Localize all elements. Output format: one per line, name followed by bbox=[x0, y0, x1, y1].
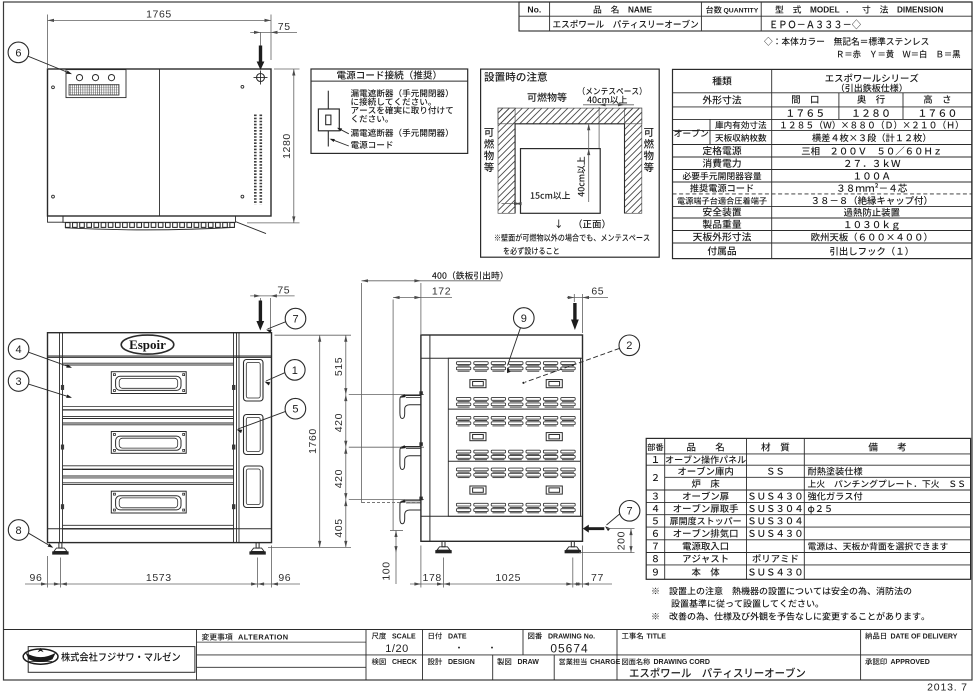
svg-text:DRAW: DRAW bbox=[518, 659, 540, 666]
svg-text:178: 178 bbox=[423, 572, 442, 584]
svg-text:75: 75 bbox=[278, 21, 291, 33]
svg-text:515: 515 bbox=[333, 357, 345, 376]
svg-text:2: 2 bbox=[626, 340, 632, 352]
svg-text:DRAWING No.: DRAWING No. bbox=[548, 633, 595, 640]
svg-text:5: 5 bbox=[292, 404, 298, 416]
svg-text:DIMENSION: DIMENSION bbox=[897, 6, 943, 15]
svg-text:2013. 7: 2013. 7 bbox=[927, 682, 968, 693]
svg-text:DATE OF DELIVERY: DATE OF DELIVERY bbox=[891, 633, 958, 640]
svg-text:SCALE: SCALE bbox=[392, 633, 416, 640]
svg-text:77: 77 bbox=[591, 572, 604, 584]
svg-text:1573: 1573 bbox=[146, 572, 172, 584]
svg-text:DRAWING CORD: DRAWING CORD bbox=[654, 659, 710, 666]
svg-text:1: 1 bbox=[292, 365, 298, 377]
svg-text:NAME: NAME bbox=[628, 6, 653, 15]
svg-text:6: 6 bbox=[15, 47, 21, 59]
svg-text:405: 405 bbox=[333, 518, 345, 537]
svg-text:420: 420 bbox=[333, 413, 345, 432]
svg-text:420: 420 bbox=[333, 469, 345, 488]
svg-text:05674: 05674 bbox=[550, 641, 588, 655]
svg-text:8: 8 bbox=[16, 525, 22, 537]
svg-text:TITLE: TITLE bbox=[647, 633, 667, 640]
svg-text:1025: 1025 bbox=[495, 572, 521, 584]
svg-text:7: 7 bbox=[292, 314, 298, 326]
svg-text:CHARGE: CHARGE bbox=[590, 659, 621, 666]
svg-text:172: 172 bbox=[432, 286, 451, 298]
svg-text:200: 200 bbox=[616, 531, 628, 550]
svg-text:APPROVED: APPROVED bbox=[891, 659, 930, 666]
svg-text:1/20: 1/20 bbox=[385, 643, 408, 655]
svg-text:1765: 1765 bbox=[146, 9, 172, 21]
svg-text:65: 65 bbox=[591, 286, 604, 298]
svg-text:75: 75 bbox=[277, 284, 290, 296]
svg-text:7: 7 bbox=[627, 506, 633, 518]
svg-text:100: 100 bbox=[381, 561, 393, 580]
svg-text:QUANTITY: QUANTITY bbox=[724, 7, 759, 14]
svg-text:96: 96 bbox=[30, 572, 43, 584]
svg-text:DESIGN: DESIGN bbox=[448, 659, 475, 666]
svg-text:9: 9 bbox=[521, 313, 527, 325]
svg-text:4: 4 bbox=[16, 344, 22, 356]
svg-text:Espoir: Espoir bbox=[129, 337, 166, 352]
svg-text:ALTERATION: ALTERATION bbox=[238, 632, 289, 641]
svg-text:1760: 1760 bbox=[307, 428, 319, 454]
svg-text:96: 96 bbox=[278, 572, 291, 584]
svg-text:CHECK: CHECK bbox=[392, 659, 417, 666]
svg-text:1280: 1280 bbox=[281, 133, 293, 159]
svg-text:3: 3 bbox=[16, 376, 22, 388]
svg-text:MODEL: MODEL bbox=[810, 6, 840, 15]
svg-text:DATE: DATE bbox=[448, 633, 467, 640]
svg-text:No.: No. bbox=[527, 5, 541, 15]
